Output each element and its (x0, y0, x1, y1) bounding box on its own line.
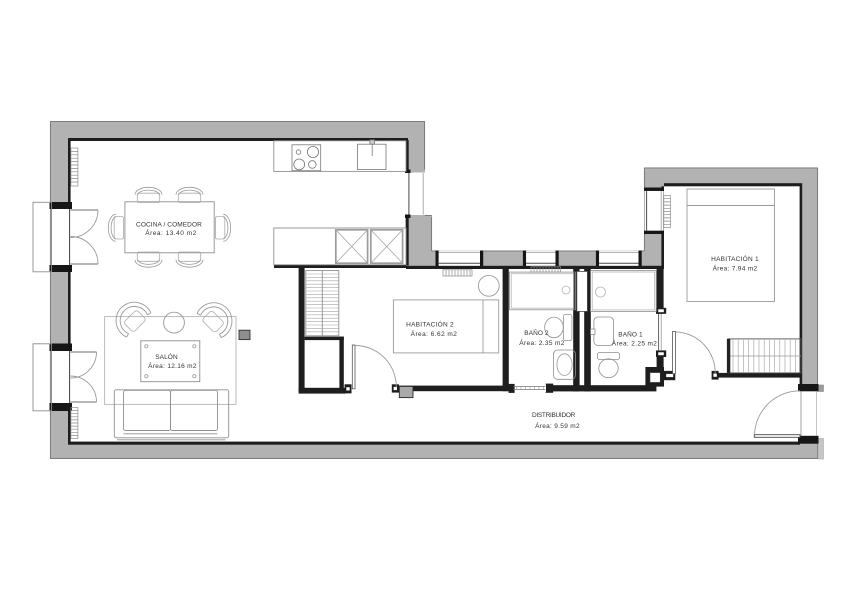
svg-text:Área: 13.40 m2: Área: 13.40 m2 (145, 228, 196, 237)
svg-text:BAÑO 1: BAÑO 1 (618, 330, 643, 339)
svg-text:Área: 2.25 m2: Área: 2.25 m2 (612, 339, 657, 348)
svg-text:BAÑO 2: BAÑO 2 (524, 328, 549, 337)
svg-text:Área: 6.62 m2: Área: 6.62 m2 (411, 329, 458, 338)
svg-text:Área: 9.59 m2: Área: 9.59 m2 (535, 421, 580, 430)
svg-text:SALÓN: SALÓN (155, 352, 178, 361)
svg-text:Área: 7.94 m2: Área: 7.94 m2 (713, 263, 758, 272)
svg-text:HABITACIÓN 2: HABITACIÓN 2 (406, 319, 454, 328)
svg-text:HABITACIÓN 1: HABITACIÓN 1 (711, 254, 759, 263)
svg-text:COCINA / COMEDOR: COCINA / COMEDOR (136, 221, 202, 228)
svg-text:DISTRIBUIDOR: DISTRIBUIDOR (532, 412, 576, 419)
svg-text:Área: 2.35 m2: Área: 2.35 m2 (519, 338, 564, 347)
svg-text:Área: 12.16 m2: Área: 12.16 m2 (148, 361, 197, 370)
